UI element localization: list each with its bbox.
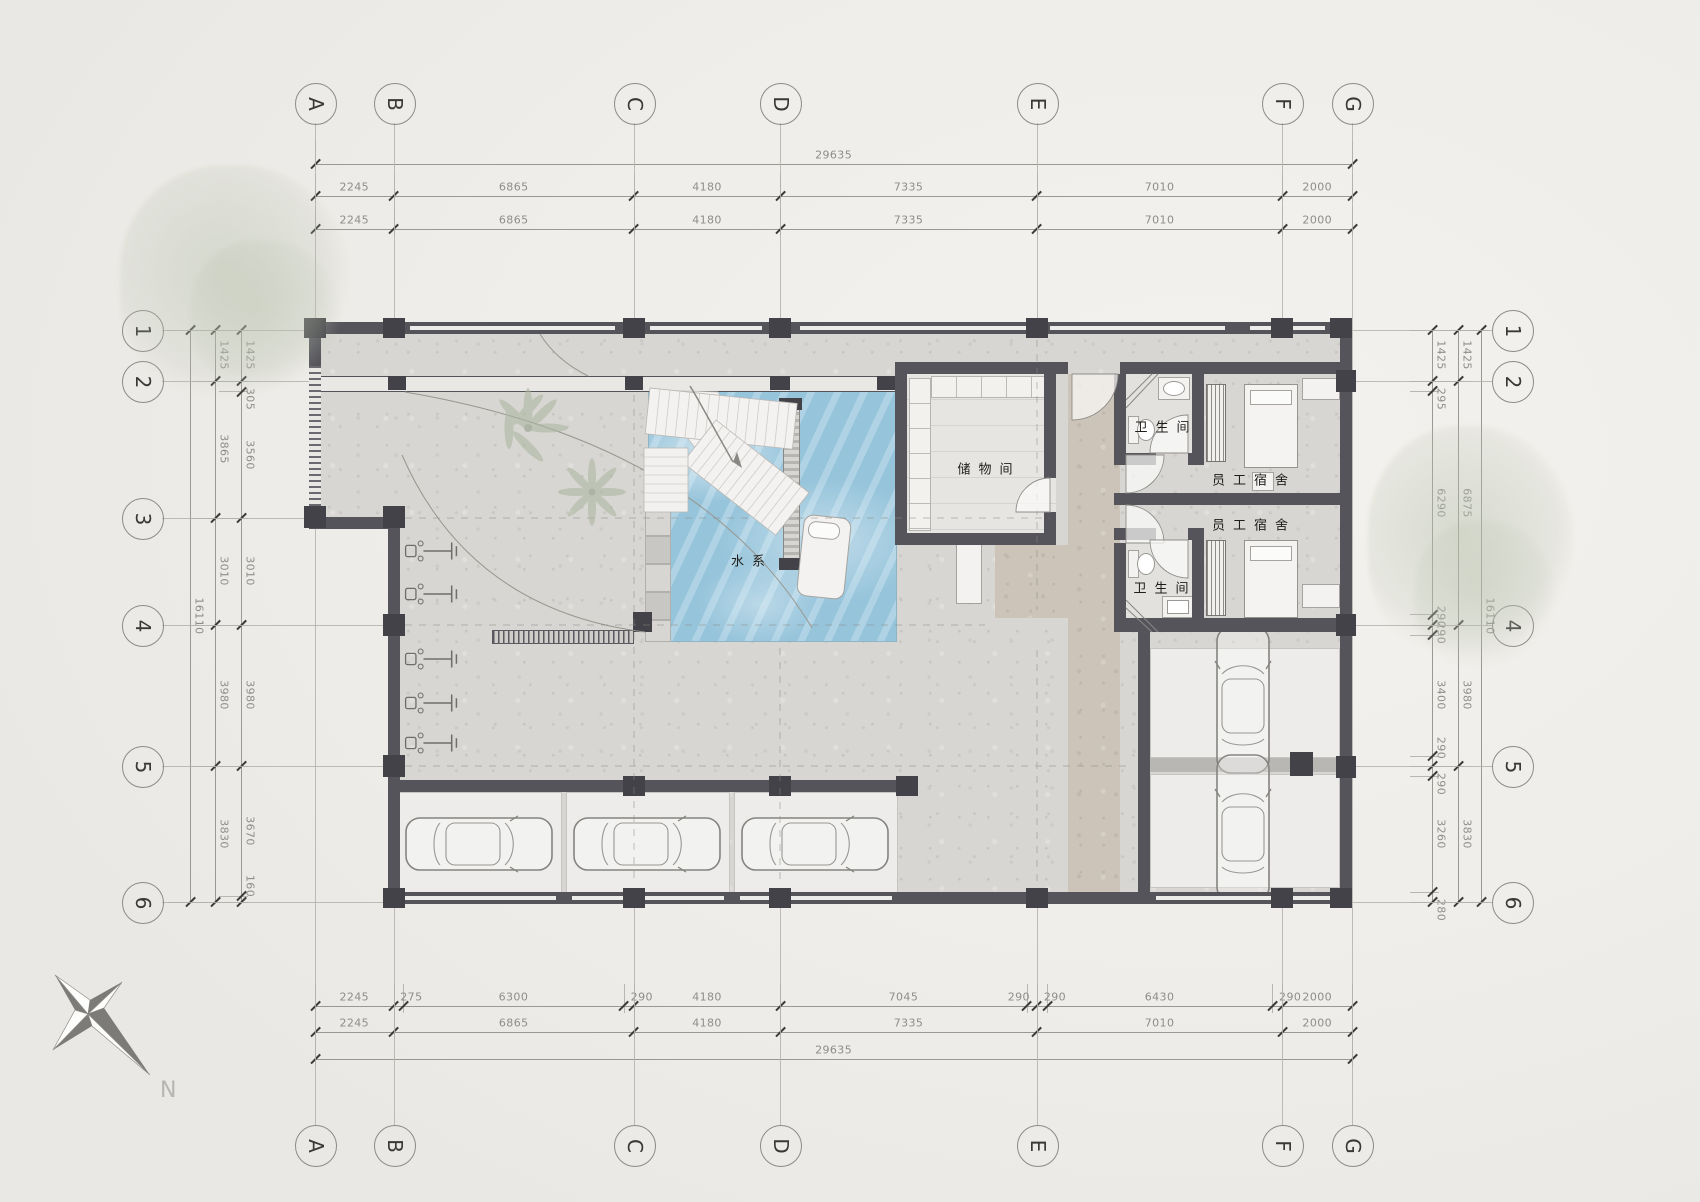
column (623, 888, 645, 908)
pool-step (645, 564, 671, 592)
window-wall (321, 376, 895, 392)
mullion (625, 376, 643, 390)
gym-equipment (402, 535, 460, 567)
column (623, 318, 645, 338)
column (383, 888, 405, 908)
wall-interior (895, 362, 1068, 374)
wall-storage-east (1044, 512, 1056, 545)
bed-pillow (1250, 390, 1292, 405)
column (383, 755, 405, 777)
gym-equipment (402, 687, 460, 719)
column (623, 776, 645, 796)
garage-door (404, 896, 556, 900)
car (404, 815, 554, 873)
column (769, 318, 791, 338)
bathtub-inner (1167, 600, 1189, 614)
building-plan: 水系 储物间 卫生间 员工宿舍 员工宿舍 卫生间 (0, 0, 1700, 1202)
wall-corridor-east (1114, 374, 1126, 455)
pool-step (645, 508, 671, 536)
column (383, 506, 405, 528)
wall-storage-south (895, 533, 1056, 545)
louvre-screen (309, 366, 321, 512)
pool-pier (783, 402, 800, 570)
room-label-bathroom-bottom: 卫生间 (1133, 578, 1196, 597)
north-compass-icon (53, 975, 150, 1075)
nightstand (1302, 584, 1340, 608)
wall-garage-west (1138, 632, 1150, 896)
drain-grate (492, 630, 634, 644)
room-label-storage: 储物间 (957, 459, 1020, 478)
counter (956, 540, 982, 604)
column (896, 776, 918, 796)
room-label-dorm-top: 员工宿舍 (1212, 470, 1296, 489)
corridor-floor-patch (995, 545, 1068, 618)
wall-garage-north (1114, 618, 1346, 632)
car (740, 815, 890, 873)
window-strip (1050, 326, 1225, 330)
mullion (770, 376, 790, 390)
sink-basin (1163, 381, 1185, 396)
room-label-dorm-bottom: 员工宿舍 (1212, 515, 1296, 534)
wall-carport-north (388, 780, 918, 792)
garage-door (1156, 896, 1332, 900)
pool-water (648, 390, 897, 642)
column (769, 888, 791, 908)
wall-bath-south (1188, 453, 1204, 465)
mullion (388, 376, 406, 390)
nightstand (1302, 378, 1340, 400)
column (1271, 888, 1293, 908)
column (1336, 614, 1356, 636)
garage-door (572, 896, 724, 900)
column (304, 318, 326, 338)
garage-door (740, 896, 892, 900)
window-strip (650, 326, 762, 330)
column (1290, 752, 1313, 776)
room-label-pool: 水系 (731, 551, 773, 570)
wall-storage-west (895, 362, 907, 545)
wall-bath-north (1188, 528, 1204, 540)
wall-bath-south (1114, 453, 1156, 465)
window-strip (800, 326, 1028, 330)
lounge-chair-pillow (807, 520, 841, 540)
wardrobe (1206, 384, 1226, 462)
room-label-bathroom-top: 卫生间 (1134, 417, 1197, 436)
wall-east (1340, 322, 1352, 904)
wall-storage-east (1044, 362, 1056, 478)
car (572, 815, 722, 873)
gym-equipment (402, 578, 460, 610)
car (1214, 753, 1272, 903)
wall-west-lower (388, 517, 400, 896)
column (769, 776, 791, 796)
column (1336, 756, 1356, 778)
mullion (877, 376, 895, 390)
wall-bath-north (1114, 528, 1156, 540)
column (1330, 318, 1352, 338)
column (383, 614, 405, 636)
corridor-floor (1068, 374, 1120, 892)
wardrobe (1206, 540, 1226, 616)
column (383, 318, 405, 338)
toilet-bowl (1137, 553, 1155, 575)
north-label: N (160, 1078, 176, 1103)
storage-shelf-north (931, 376, 1056, 398)
column (633, 612, 652, 632)
bed-pillow (1250, 546, 1292, 561)
column (1336, 370, 1356, 392)
column (1271, 318, 1293, 338)
wall-interior (1120, 362, 1346, 374)
pool-step (645, 536, 671, 564)
storage-shelf-west (909, 378, 931, 531)
gym-equipment (402, 727, 460, 759)
column (1330, 888, 1352, 908)
floor-plan-canvas: 2963522456865418073357010200022456865418… (0, 0, 1700, 1202)
column (1026, 888, 1048, 908)
pier-cap (779, 398, 802, 410)
column (1026, 318, 1048, 338)
wall-bath-east (1192, 374, 1204, 453)
gym-equipment (402, 643, 460, 675)
column (304, 506, 326, 528)
wall-dorm-divider (1114, 493, 1346, 505)
window-strip (410, 326, 615, 330)
terrace-floor (309, 333, 400, 520)
